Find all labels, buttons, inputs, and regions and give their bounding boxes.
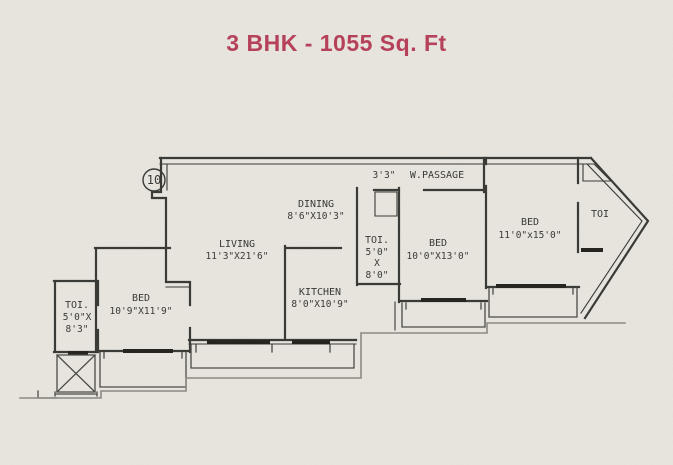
passage-width-label: 3'3" (373, 170, 396, 181)
kitchen-size: 8'0"X10'9" (291, 299, 348, 310)
floor-plan-drawing: 10 W.PASSAGE 3'3" DINING 8'6"X10'3" LIVI… (0, 0, 673, 465)
bed-right-label: BED (521, 217, 539, 228)
toi-left-size-1: 5'0"X (63, 312, 92, 323)
dining-label: DINING (298, 199, 334, 210)
bed-left-label: BED (132, 293, 150, 304)
toi-left-label: TOI. (65, 300, 89, 311)
toi-left-size-2: 8'3" (66, 324, 89, 335)
toi-mid-size-3: 8'0" (366, 270, 389, 281)
passage-label: W.PASSAGE (410, 170, 464, 181)
bed-right-size: 11'0"x15'0" (499, 230, 562, 241)
bed-left-size: 10'9"X11'9" (110, 306, 173, 317)
floor-plan-page: 3 BHK - 1055 Sq. Ft (0, 0, 673, 465)
dining-size: 8'6"X10'3" (287, 211, 344, 222)
toi-mid-size-1: 5'0" (366, 247, 389, 258)
living-size: 11'3"X21'6" (206, 251, 269, 262)
page-title: 3 BHK - 1055 Sq. Ft (0, 30, 673, 57)
unit-number-label: 10 (147, 173, 161, 187)
kitchen-label: KITCHEN (299, 287, 341, 298)
bed-mid-size: 10'0"X13'0" (407, 251, 470, 262)
toi-mid-size-2: X (374, 258, 380, 269)
bed-mid-label: BED (429, 238, 447, 249)
toi-mid-label: TOI. (365, 235, 389, 246)
toi-right-label: TOI (591, 209, 609, 220)
living-label: LIVING (219, 239, 255, 250)
